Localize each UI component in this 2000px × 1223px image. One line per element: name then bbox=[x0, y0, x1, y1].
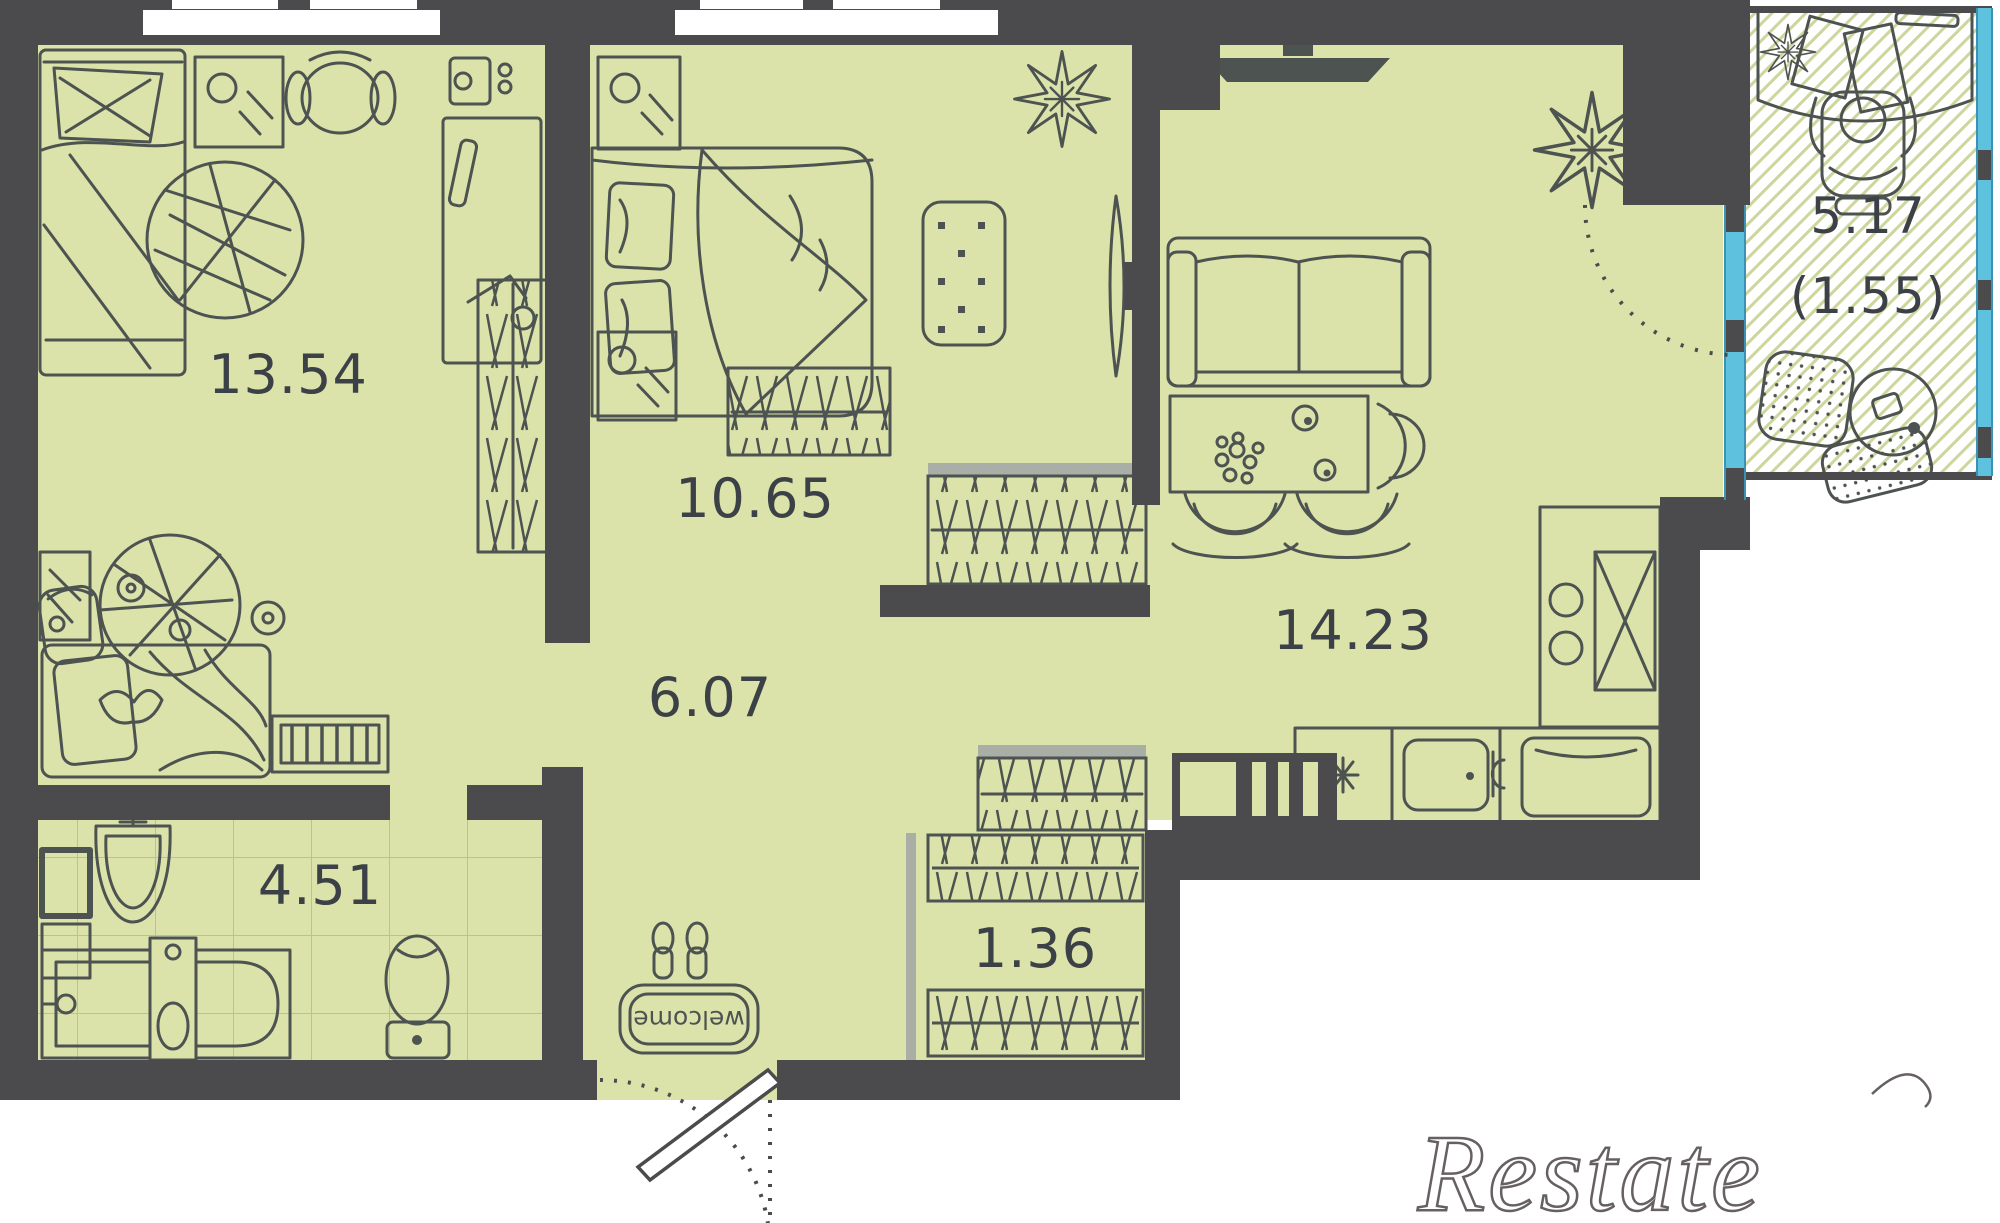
balcony-chair-icon bbox=[1756, 349, 1855, 448]
wardrobe-icon bbox=[728, 368, 890, 455]
floor-plan-page: 13.54 10.65 6.07 4.51 1.36 14.23 5.17 (1… bbox=[0, 0, 2000, 1223]
label-bedroom-1: 13.54 bbox=[208, 343, 368, 406]
washing-machine-icon bbox=[150, 938, 196, 1060]
wall-left bbox=[0, 0, 38, 1100]
label-bedroom-2: 10.65 bbox=[675, 467, 835, 530]
label-bathroom: 4.51 bbox=[258, 854, 382, 917]
wall-kitchen-right-top bbox=[1660, 497, 1750, 550]
bedside-shelf-icon bbox=[272, 716, 388, 772]
watermark: Restate bbox=[1417, 1074, 1930, 1223]
wall-bottom-center bbox=[777, 1060, 1180, 1100]
shoe-cabinet-icon bbox=[978, 745, 1146, 830]
floor-plan-drawing: 13.54 10.65 6.07 4.51 1.36 14.23 5.17 (1… bbox=[0, 0, 2000, 1223]
label-hallway: 6.07 bbox=[648, 666, 772, 729]
balcony-bottom-edge bbox=[1745, 472, 1992, 480]
label-balcony: 5.17 bbox=[1810, 187, 1925, 245]
window-bedroom-2 bbox=[675, 10, 998, 35]
balcony-door-window bbox=[1725, 205, 1745, 500]
hanger-rail-icon bbox=[928, 990, 1143, 1056]
watermark-flourish bbox=[1872, 1074, 1930, 1107]
wall-closet-right bbox=[1145, 830, 1180, 1060]
wall-kitchen-bottom bbox=[1172, 820, 1700, 880]
wall-top-right-corner bbox=[1623, 45, 1750, 205]
window-bedroom-1 bbox=[143, 10, 440, 35]
label-door-mat: welcome bbox=[633, 1005, 745, 1034]
storage-shelf-icon bbox=[928, 463, 1146, 584]
wall-living-left bbox=[1132, 32, 1160, 505]
wall-between-bedrooms bbox=[545, 45, 590, 643]
wall-bedroom1-bottom bbox=[0, 785, 390, 820]
wall-living-corner bbox=[1160, 45, 1220, 110]
balcony-top-edge bbox=[1745, 6, 1992, 13]
hanger-rail-icon bbox=[928, 835, 1143, 901]
closet-side-panel bbox=[906, 833, 916, 1060]
watermark-text: Restate bbox=[1417, 1112, 1763, 1223]
balcony-glazing bbox=[1977, 8, 1992, 476]
drying-rack-icon bbox=[478, 280, 548, 552]
label-closet: 1.36 bbox=[973, 917, 1097, 980]
wall-niche-bottom bbox=[880, 585, 1150, 617]
label-kitchen-living: 14.23 bbox=[1273, 599, 1433, 662]
wall-bottom-left bbox=[0, 1060, 597, 1100]
label-balcony-weighted: (1.55) bbox=[1790, 267, 1946, 325]
wall-bathroom-door-jamb bbox=[467, 785, 583, 820]
